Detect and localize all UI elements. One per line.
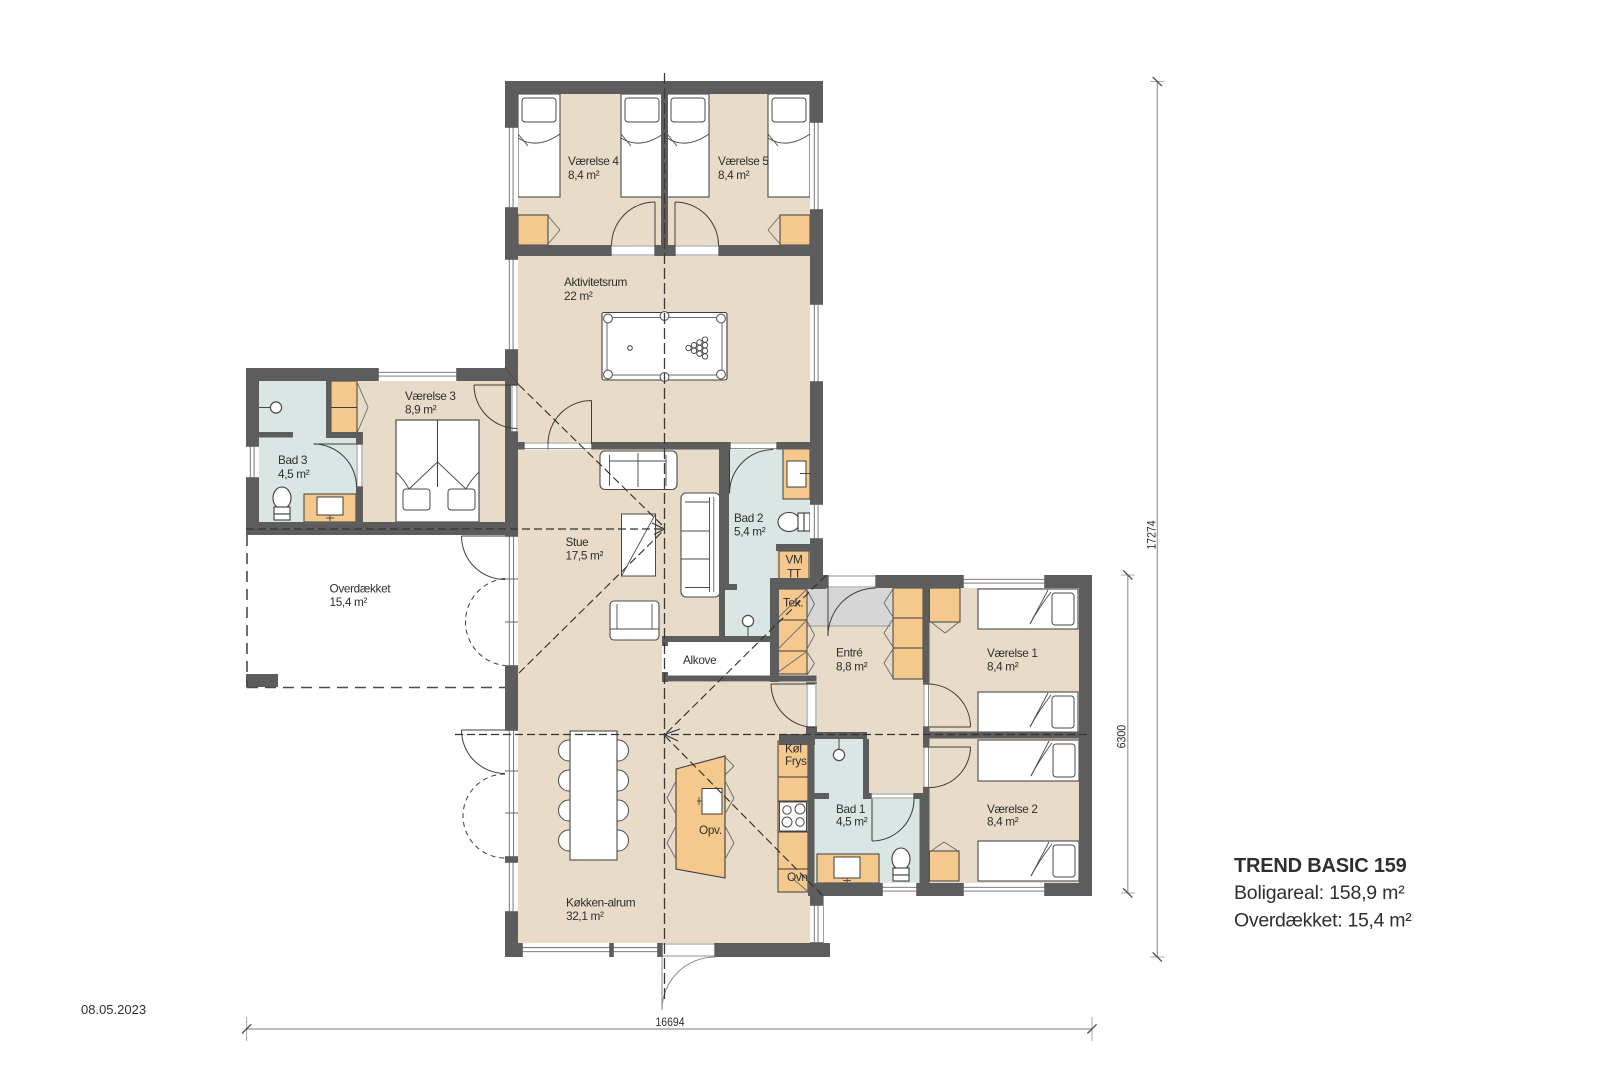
svg-text:Værelse 3: Værelse 3	[405, 389, 456, 403]
svg-text:Ovn: Ovn	[787, 870, 808, 884]
svg-text:4,5 m²: 4,5 m²	[836, 815, 868, 829]
svg-text:17274: 17274	[1145, 520, 1159, 549]
svg-text:08.05.2023: 08.05.2023	[81, 1002, 146, 1017]
svg-text:8,4 m²: 8,4 m²	[987, 660, 1019, 674]
svg-text:Boligareal: 158,9 m²: Boligareal: 158,9 m²	[1234, 882, 1405, 904]
svg-text:VM: VM	[786, 553, 803, 567]
svg-text:Værelse 1: Værelse 1	[987, 646, 1038, 660]
svg-text:17,5 m²: 17,5 m²	[566, 549, 604, 563]
svg-text:8,8 m²: 8,8 m²	[836, 660, 868, 674]
svg-text:8,4 m²: 8,4 m²	[718, 168, 750, 182]
svg-text:Alkove: Alkove	[683, 653, 717, 667]
svg-text:Stue: Stue	[566, 535, 590, 549]
svg-text:Bad 2: Bad 2	[734, 511, 763, 525]
svg-text:Entré: Entré	[836, 646, 863, 660]
svg-text:TREND BASIC 159: TREND BASIC 159	[1234, 855, 1407, 877]
svg-text:TT: TT	[787, 567, 801, 581]
svg-text:Bad 3: Bad 3	[278, 453, 308, 467]
svg-text:Opv.: Opv.	[699, 823, 722, 837]
svg-text:8,4 m²: 8,4 m²	[568, 168, 600, 182]
svg-text:6300: 6300	[1114, 725, 1128, 749]
svg-text:Overdækket: 15,4 m²: Overdækket: 15,4 m²	[1234, 910, 1412, 932]
svg-text:8,9 m²: 8,9 m²	[405, 403, 437, 417]
svg-text:8,4 m²: 8,4 m²	[987, 815, 1019, 829]
svg-text:Frys: Frys	[785, 754, 807, 768]
svg-text:32,1 m²: 32,1 m²	[566, 909, 604, 923]
svg-text:4,5 m²: 4,5 m²	[278, 467, 310, 481]
svg-text:22 m²: 22 m²	[564, 289, 593, 303]
svg-text:Køkken-alrum: Køkken-alrum	[566, 896, 636, 910]
svg-text:Værelse 5: Værelse 5	[718, 154, 769, 168]
svg-text:15,4 m²: 15,4 m²	[330, 595, 368, 609]
svg-text:Tek.: Tek.	[783, 596, 803, 610]
svg-text:16694: 16694	[656, 1015, 685, 1029]
svg-text:Aktivitetsrum: Aktivitetsrum	[564, 275, 627, 289]
svg-text:Værelse 4: Værelse 4	[568, 154, 619, 168]
svg-text:5,4 m²: 5,4 m²	[734, 525, 766, 539]
svg-text:Overdækket: Overdækket	[330, 582, 392, 596]
